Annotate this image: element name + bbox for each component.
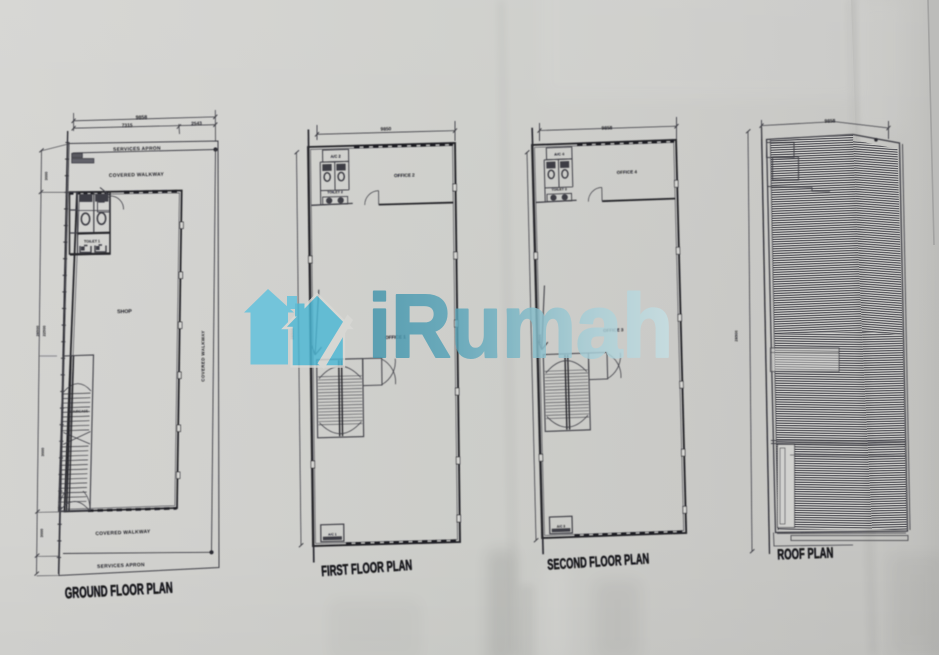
svg-text:STAIRCASE: STAIRCASE (69, 409, 89, 414)
svg-text:7315: 7315 (122, 123, 133, 129)
svg-text:SHOP: SHOP (117, 309, 132, 315)
svg-text:9858: 9858 (602, 125, 613, 131)
svg-text:SERVICES APRON: SERVICES APRON (113, 146, 161, 153)
svg-text:A/C 1: A/C 1 (328, 532, 337, 536)
svg-text:3000: 3000 (40, 448, 45, 457)
svg-text:A/C 4: A/C 4 (554, 151, 565, 156)
svg-text:9850: 9850 (381, 126, 392, 132)
svg-text:3000: 3000 (44, 172, 49, 181)
svg-text:A/C 3: A/C 3 (557, 524, 566, 528)
svg-text:OFFICE 4: OFFICE 4 (617, 169, 638, 175)
svg-text:COVERED WALKWAY: COVERED WALKWAY (109, 172, 165, 179)
svg-text:iRumah: iRumah (368, 277, 673, 377)
svg-text:3000: 3000 (39, 529, 44, 538)
svg-text:22500: 22500 (41, 326, 46, 337)
svg-text:ROOF PLAN: ROOF PLAN (777, 546, 834, 564)
svg-text:28500: 28500 (734, 330, 739, 342)
svg-text:OFFICE 2: OFFICE 2 (394, 173, 415, 179)
svg-text:COVERED WALKWAY: COVERED WALKWAY (201, 330, 206, 381)
svg-text:9858: 9858 (825, 118, 836, 124)
svg-text:TOILET 2: TOILET 2 (327, 190, 343, 194)
svg-text:TOILET 1: TOILET 1 (84, 239, 100, 243)
svg-text:2543: 2543 (191, 121, 202, 127)
svg-text:28500: 28500 (35, 326, 40, 337)
svg-text:9858: 9858 (136, 115, 148, 121)
svg-text:TOILET 3: TOILET 3 (551, 187, 566, 192)
svg-text:A/C 2: A/C 2 (330, 154, 341, 159)
